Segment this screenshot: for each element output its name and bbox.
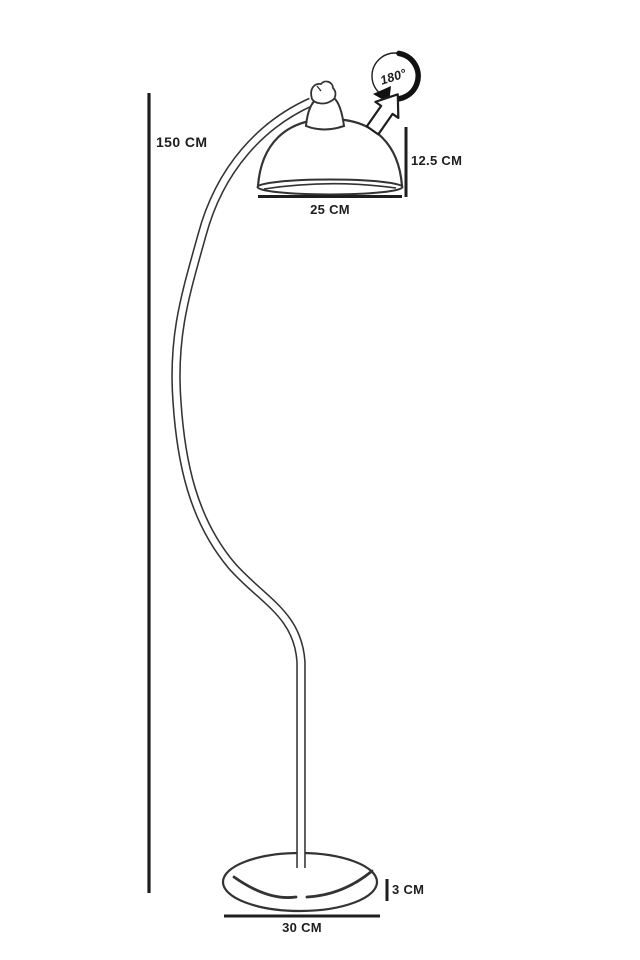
diagram-canvas: 150 CM xyxy=(0,0,640,960)
rotation-label: 180° xyxy=(378,66,408,88)
shade-diameter-label: 25 CM xyxy=(310,202,350,217)
lamp-dimension-diagram: 150 CM xyxy=(0,0,640,960)
lamp-drawing xyxy=(176,81,403,911)
dimension-base-height: 3 CM xyxy=(387,879,424,901)
base-edge-line-right xyxy=(307,871,372,897)
base-edge-line-left xyxy=(234,877,296,898)
pole-tube-outer xyxy=(176,102,311,868)
base-diameter-label: 30 CM xyxy=(282,920,322,935)
lamp-arc-pole xyxy=(176,102,311,870)
joint-knob xyxy=(311,81,335,103)
dimension-shade-diameter: 25 CM xyxy=(258,197,402,218)
shade-rim-inner xyxy=(264,184,396,189)
dimension-shade-height: 12.5 CM xyxy=(406,127,462,197)
lamp-height-label: 150 CM xyxy=(156,134,207,150)
pole-tube-inner xyxy=(176,102,311,870)
dimension-base-diameter: 30 CM xyxy=(224,916,380,935)
base-height-label: 3 CM xyxy=(392,882,424,897)
dimension-lamp-height: 150 CM xyxy=(149,93,207,893)
shade-swivel-joint xyxy=(306,81,344,129)
shade-height-label: 12.5 CM xyxy=(411,153,462,168)
